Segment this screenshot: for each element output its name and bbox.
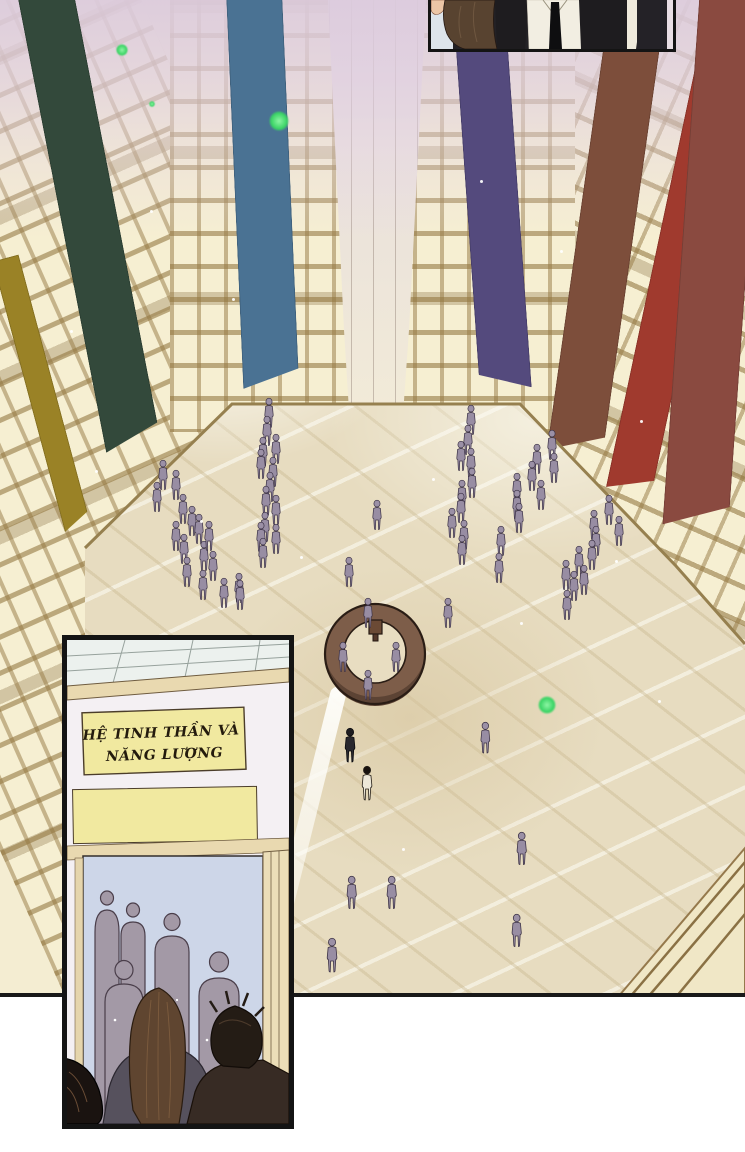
crowd-person <box>559 560 573 590</box>
crowd-person <box>217 578 231 608</box>
green-particle <box>538 696 556 714</box>
crowd-person <box>494 526 508 556</box>
crowd-person <box>233 580 247 610</box>
crowd-person <box>370 500 384 530</box>
crowd-person <box>344 876 359 909</box>
speckle <box>640 420 643 423</box>
suit-left <box>495 0 529 49</box>
speckle <box>402 848 405 851</box>
woman-brown-hair <box>129 988 185 1124</box>
crowd-person <box>534 480 548 510</box>
crowd-person <box>361 598 375 628</box>
man-black-suit <box>342 728 358 763</box>
crowd-person <box>492 553 506 583</box>
speckle <box>95 470 98 473</box>
speckle <box>70 330 73 333</box>
crowd-person <box>361 670 375 700</box>
panel-closeup-suits <box>428 0 676 52</box>
crowd-person <box>478 722 493 754</box>
speckle <box>560 250 563 253</box>
speckle <box>200 520 203 523</box>
crowd-person <box>560 590 574 620</box>
crowd-person <box>612 516 626 546</box>
speckle <box>615 560 618 563</box>
crowd-person <box>547 453 561 483</box>
crowd-person <box>256 538 270 568</box>
crowd-person <box>150 482 164 512</box>
crowd-person <box>336 642 350 672</box>
crowd-person <box>342 557 356 587</box>
blank-sign <box>73 786 258 843</box>
crowd-person <box>509 914 524 947</box>
crowd-person <box>180 557 194 587</box>
crowd-person <box>514 832 529 865</box>
suit-right <box>579 0 627 49</box>
speckle <box>232 298 235 301</box>
comic-page: HỆ TINH THẦN VÀ NĂNG LƯỢNG <box>0 0 745 1152</box>
crowd-person <box>269 524 283 554</box>
crowd-person <box>202 521 216 551</box>
green-particle <box>269 111 289 131</box>
crowd-person <box>512 503 526 533</box>
speckle <box>658 700 661 703</box>
speckle <box>150 210 153 213</box>
protagonist-white-shirt <box>359 766 375 801</box>
crowd-person <box>196 570 210 600</box>
spirit-energy-sign: HỆ TINH THẦN VÀ NĂNG LƯỢNG <box>81 707 246 775</box>
crowd-person <box>455 535 469 565</box>
green-particle <box>149 101 155 107</box>
speckle <box>520 622 523 625</box>
speckle <box>480 180 483 183</box>
panel-doorway-crowd: HỆ TINH THẦN VÀ NĂNG LƯỢNG <box>62 635 294 1129</box>
speckle <box>300 556 303 559</box>
crowd-person <box>384 876 399 909</box>
green-particle <box>116 44 128 56</box>
crowd-person <box>441 598 455 628</box>
crowd-person <box>324 938 340 973</box>
crowd-person <box>389 642 403 672</box>
speckle <box>432 478 435 481</box>
